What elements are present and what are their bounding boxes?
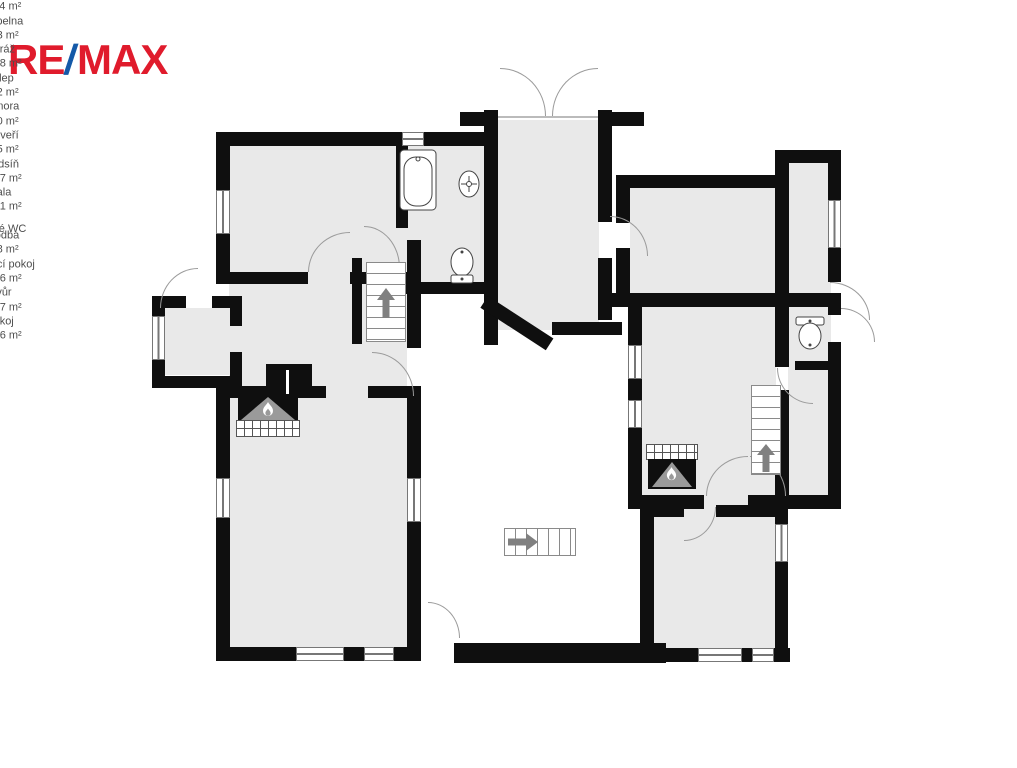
labels-layer: Kuchyně 11.54 m² Koupelna 5.43 m² Garáž … [0, 0, 1017, 768]
room-name: Obývací pokoj [0, 257, 509, 271]
room-area: 13.38 m² [0, 57, 509, 71]
room-label: Kuchyně 11.54 m² [0, 0, 509, 14]
room-name: Sklep [0, 71, 509, 85]
dimension-label: 102 [0, 592, 509, 602]
room-label: Sklep 9.12 m² [0, 71, 509, 100]
dimension-label: 137 [0, 402, 509, 412]
room-name: Pokoj [0, 315, 509, 329]
dimension-label: 124 [0, 512, 509, 522]
room-label: Pokoj 10.16 m² [0, 315, 509, 344]
flame-icon [665, 467, 678, 482]
toilet-icon [448, 247, 476, 285]
room-label: Dvůr 41.17 m² [0, 286, 509, 315]
room-name: Garáž [0, 43, 509, 57]
room-area: 5.43 m² [0, 29, 509, 43]
room-name: Koupelna [0, 14, 509, 28]
toilet-icon [794, 316, 826, 350]
room-label: Garáž 13.38 m² [0, 43, 509, 72]
dimension-label: 137 [0, 702, 509, 712]
room-name: Chodba [0, 229, 509, 243]
room-label: Chodba 2.48 m² [0, 229, 509, 258]
dimension-label: 90 [0, 482, 509, 492]
dimension-label: 24 [0, 682, 509, 692]
room-area: 11.54 m² [0, 0, 509, 14]
stairs-right-arrow-icon [508, 533, 538, 551]
dimension-label: 262 [0, 362, 509, 372]
floor-plan: RE/MAX [0, 0, 1017, 768]
dimension-label: 117 [0, 462, 509, 472]
dimension-label: 297 [0, 352, 509, 362]
stairs-up-arrow-icon [377, 288, 395, 318]
room-name: Zádveří [0, 129, 509, 143]
room-name: Komora [0, 100, 509, 114]
dimension-label: 100 [0, 412, 509, 422]
room-area: 25.06 m² [0, 272, 509, 286]
room-area: 9.12 m² [0, 86, 509, 100]
room-area: 10.16 m² [0, 329, 509, 343]
dimension-label: 357 [0, 422, 509, 432]
room-area: 41.17 m² [0, 300, 509, 314]
stairs-up-arrow-icon [757, 444, 775, 472]
room-area: 2.48 m² [0, 243, 509, 257]
dimension-label: 42 [0, 392, 509, 402]
flame-icon [261, 402, 275, 418]
room-area: 3.80 m² [0, 114, 509, 128]
bathtub-icon [399, 149, 437, 211]
dimension-label: 102 [0, 582, 509, 592]
sink-icon [456, 168, 480, 200]
room-label: Obývací pokoj 25.06 m² [0, 257, 509, 286]
dimension-label: 124 [0, 522, 509, 532]
dimension-label: 405 [0, 382, 509, 392]
dimension-label: 179 [0, 372, 509, 382]
room-label: Komora 3.80 m² [0, 100, 509, 129]
room-label: Koupelna 5.43 m² [0, 14, 509, 43]
room-name: Dvůr [0, 286, 509, 300]
dimension-label: 318 [0, 269, 5, 768]
